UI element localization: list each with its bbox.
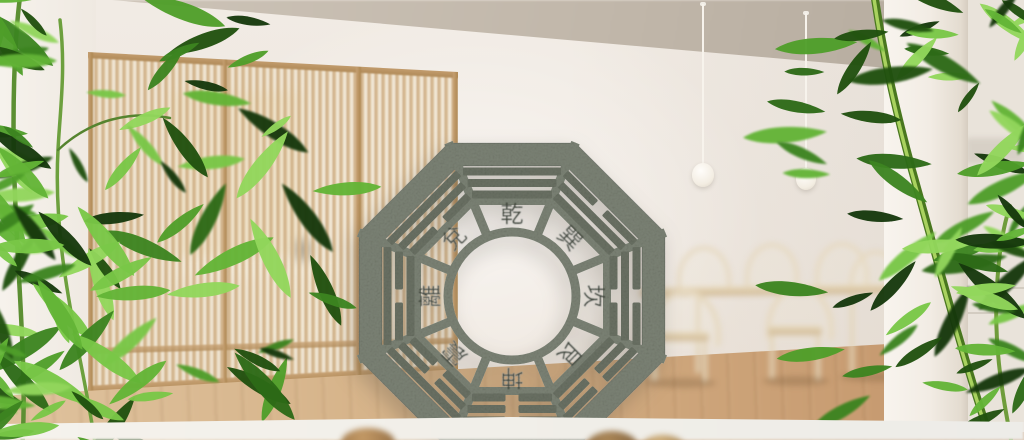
shelf-line xyxy=(966,312,1024,314)
chair-leg xyxy=(770,335,774,379)
chair-leg xyxy=(816,335,820,381)
screen-stile xyxy=(223,52,227,392)
chair-back xyxy=(745,243,799,287)
trigram-line-broken xyxy=(472,394,506,402)
trigram-line-broken xyxy=(519,394,553,402)
bagua-character-kun: 坤 xyxy=(501,364,524,390)
trigram-line-solid xyxy=(384,247,392,345)
trigram-line-broken xyxy=(395,303,403,341)
white-column xyxy=(884,0,968,422)
wall-shadow-band xyxy=(966,138,1024,164)
bagua-character-qian: 乾 xyxy=(501,202,524,228)
bagua-character-li: 離 xyxy=(418,285,444,308)
trigram-line-broken xyxy=(610,303,618,337)
bagua-outer-ring xyxy=(359,143,665,440)
trigram-line-broken xyxy=(468,405,506,413)
left-wall-panel xyxy=(0,0,96,440)
trigram-line-solid xyxy=(621,252,629,341)
pendant-lamp xyxy=(796,168,816,190)
bagua-character-kan: 坎 xyxy=(580,285,606,308)
zen-interior-photo: 乾巽坎艮坤震離兌 xyxy=(0,0,1024,440)
trigram-line-solid xyxy=(407,256,415,336)
table-leg xyxy=(850,294,854,374)
trigram-line-solid xyxy=(463,168,561,176)
bagua-svg: 乾巽坎艮坤震離兌 xyxy=(317,101,707,440)
chair-shadow xyxy=(763,376,829,386)
trigram-line-solid xyxy=(472,191,552,199)
shelf-line xyxy=(966,287,1024,289)
trigram-line-broken xyxy=(633,303,641,346)
trigram-line-broken xyxy=(519,405,557,413)
trigram-line-broken xyxy=(395,252,403,290)
chair-seat xyxy=(768,326,822,335)
bagua-circle-rim xyxy=(448,232,576,360)
far-right-wall xyxy=(966,0,1024,432)
trigram-line-broken xyxy=(610,256,618,290)
lamp-cord xyxy=(805,13,807,170)
trigram-line-broken xyxy=(633,247,641,290)
screen-stile xyxy=(88,48,93,396)
bagua-stone-group: 乾巽坎艮坤震離兌 xyxy=(357,141,667,440)
trigram-line-solid xyxy=(468,179,557,187)
